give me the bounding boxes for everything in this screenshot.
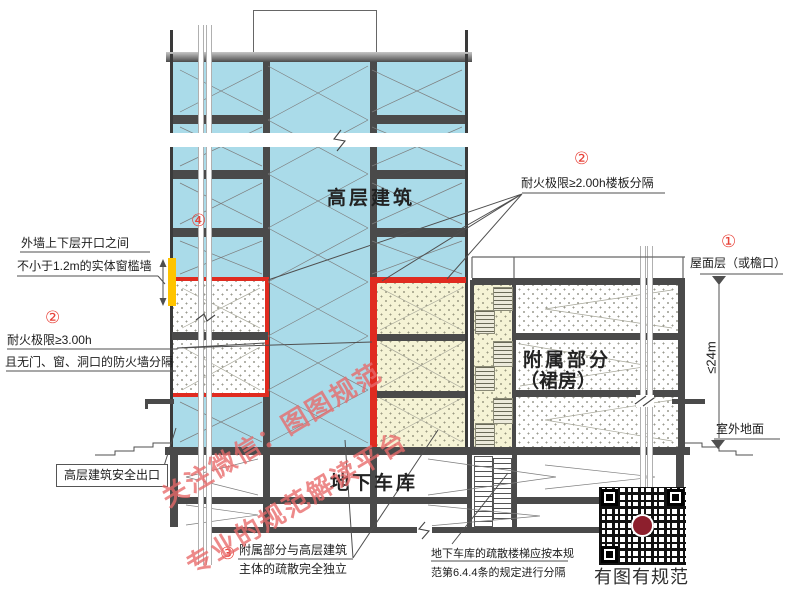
break-zigzag-box	[196, 314, 215, 321]
podium-label-line2: （裙房）	[520, 366, 596, 393]
spandrel-callout-line2: 不小于1.2m的实体窗槛墙	[17, 260, 152, 274]
tower-exit-label: 高层建筑安全出口	[56, 464, 168, 487]
fire-safety-section-diagram: 高层建筑 附属部分 （裙房） 地下车库 ① 屋面层（或檐口） ≤24m 室外地面…	[0, 0, 800, 589]
fire-wall-callout-line2: 且无门、窗、洞口的防火墙分隔	[5, 356, 173, 370]
tower-label: 高层建筑	[327, 183, 415, 210]
badge-4: ④	[191, 212, 206, 229]
qr-finder-icon	[601, 546, 618, 563]
leader-garage-stair	[452, 473, 508, 544]
height-dim-text: ≤24m	[704, 328, 719, 388]
garage-stair-note-line2: 范第6.4.4条的规定进行分隔	[431, 566, 565, 580]
qr-finder-icon	[667, 489, 684, 506]
floor-separation-callout: 耐火极限≥2.00h楼板分隔	[521, 177, 654, 191]
spandrel-callout-line1: 外墙上下层开口之间	[21, 237, 129, 251]
badge-2-top: ②	[574, 150, 589, 167]
ground-steps-left	[95, 443, 172, 455]
qr-code	[599, 487, 686, 565]
qr-center-logo-icon	[631, 514, 654, 537]
break-zigzag-column	[635, 396, 654, 406]
dim-arrowheads	[160, 259, 727, 449]
leader-spandrel	[158, 276, 165, 284]
break-zigzag-band	[334, 130, 345, 151]
qr-caption: 有图有规范	[594, 563, 689, 589]
fire-wall-callout-line1: 耐火极限≥3.00h	[7, 334, 92, 348]
badge-2-left: ②	[45, 309, 60, 326]
roof-callout: 屋面层（或檐口）	[690, 257, 786, 271]
leader-exit	[164, 428, 176, 466]
qr-finder-icon	[601, 489, 618, 506]
independent-callout-line2: 主体的疏散完全独立	[239, 563, 347, 577]
badge-1: ①	[721, 233, 736, 250]
break-zigzag-slab	[419, 522, 429, 539]
podium-parapet	[472, 257, 685, 278]
garage-stair-note-line1: 地下车库的疏散楼梯应按本规	[431, 547, 574, 561]
outdoor-ground-label: 室外地面	[716, 423, 764, 437]
leader-firewall	[177, 342, 372, 348]
